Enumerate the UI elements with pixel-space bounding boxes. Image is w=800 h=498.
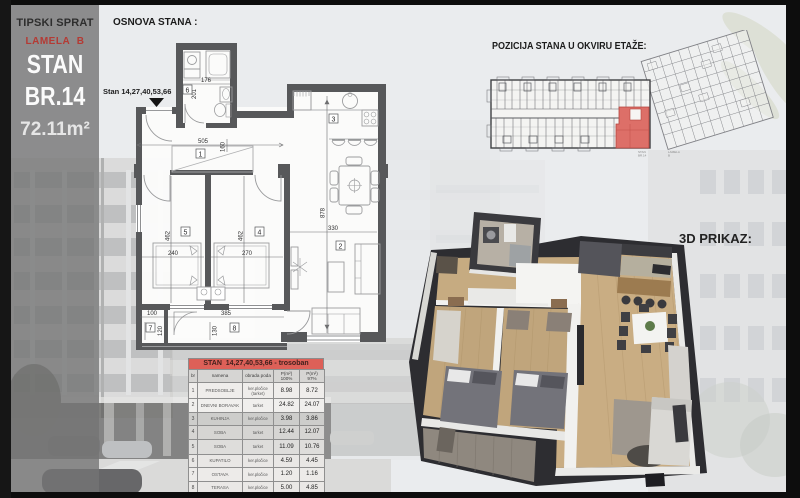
svg-text:120: 120 [158, 325, 164, 336]
svg-text:385: 385 [221, 311, 232, 317]
svg-text:2: 2 [339, 244, 343, 251]
svg-text:176: 176 [201, 78, 212, 84]
svg-text:270: 270 [242, 251, 253, 257]
svg-text:462: 462 [166, 230, 172, 241]
svg-text:1: 1 [199, 152, 203, 159]
svg-text:8: 8 [233, 326, 237, 333]
svg-text:B: B [668, 154, 670, 158]
svg-text:878: 878 [321, 207, 327, 218]
svg-text:3: 3 [332, 117, 336, 124]
svg-text:462: 462 [239, 230, 245, 241]
svg-text:6: 6 [186, 88, 190, 95]
svg-text:130: 130 [213, 325, 219, 336]
svg-text:160: 160 [221, 141, 227, 152]
svg-text:5: 5 [184, 230, 188, 237]
svg-text:330: 330 [328, 226, 339, 232]
svg-text:Stan 14,27,40,53,66: Stan 14,27,40,53,66 [103, 87, 171, 96]
svg-text:BR.14: BR.14 [638, 154, 647, 158]
svg-text:505: 505 [198, 139, 209, 145]
svg-text:100: 100 [147, 311, 158, 317]
svg-text:240: 240 [168, 251, 179, 257]
svg-text:4: 4 [258, 230, 262, 237]
svg-text:7: 7 [149, 326, 153, 333]
svg-text:201: 201 [192, 88, 198, 99]
